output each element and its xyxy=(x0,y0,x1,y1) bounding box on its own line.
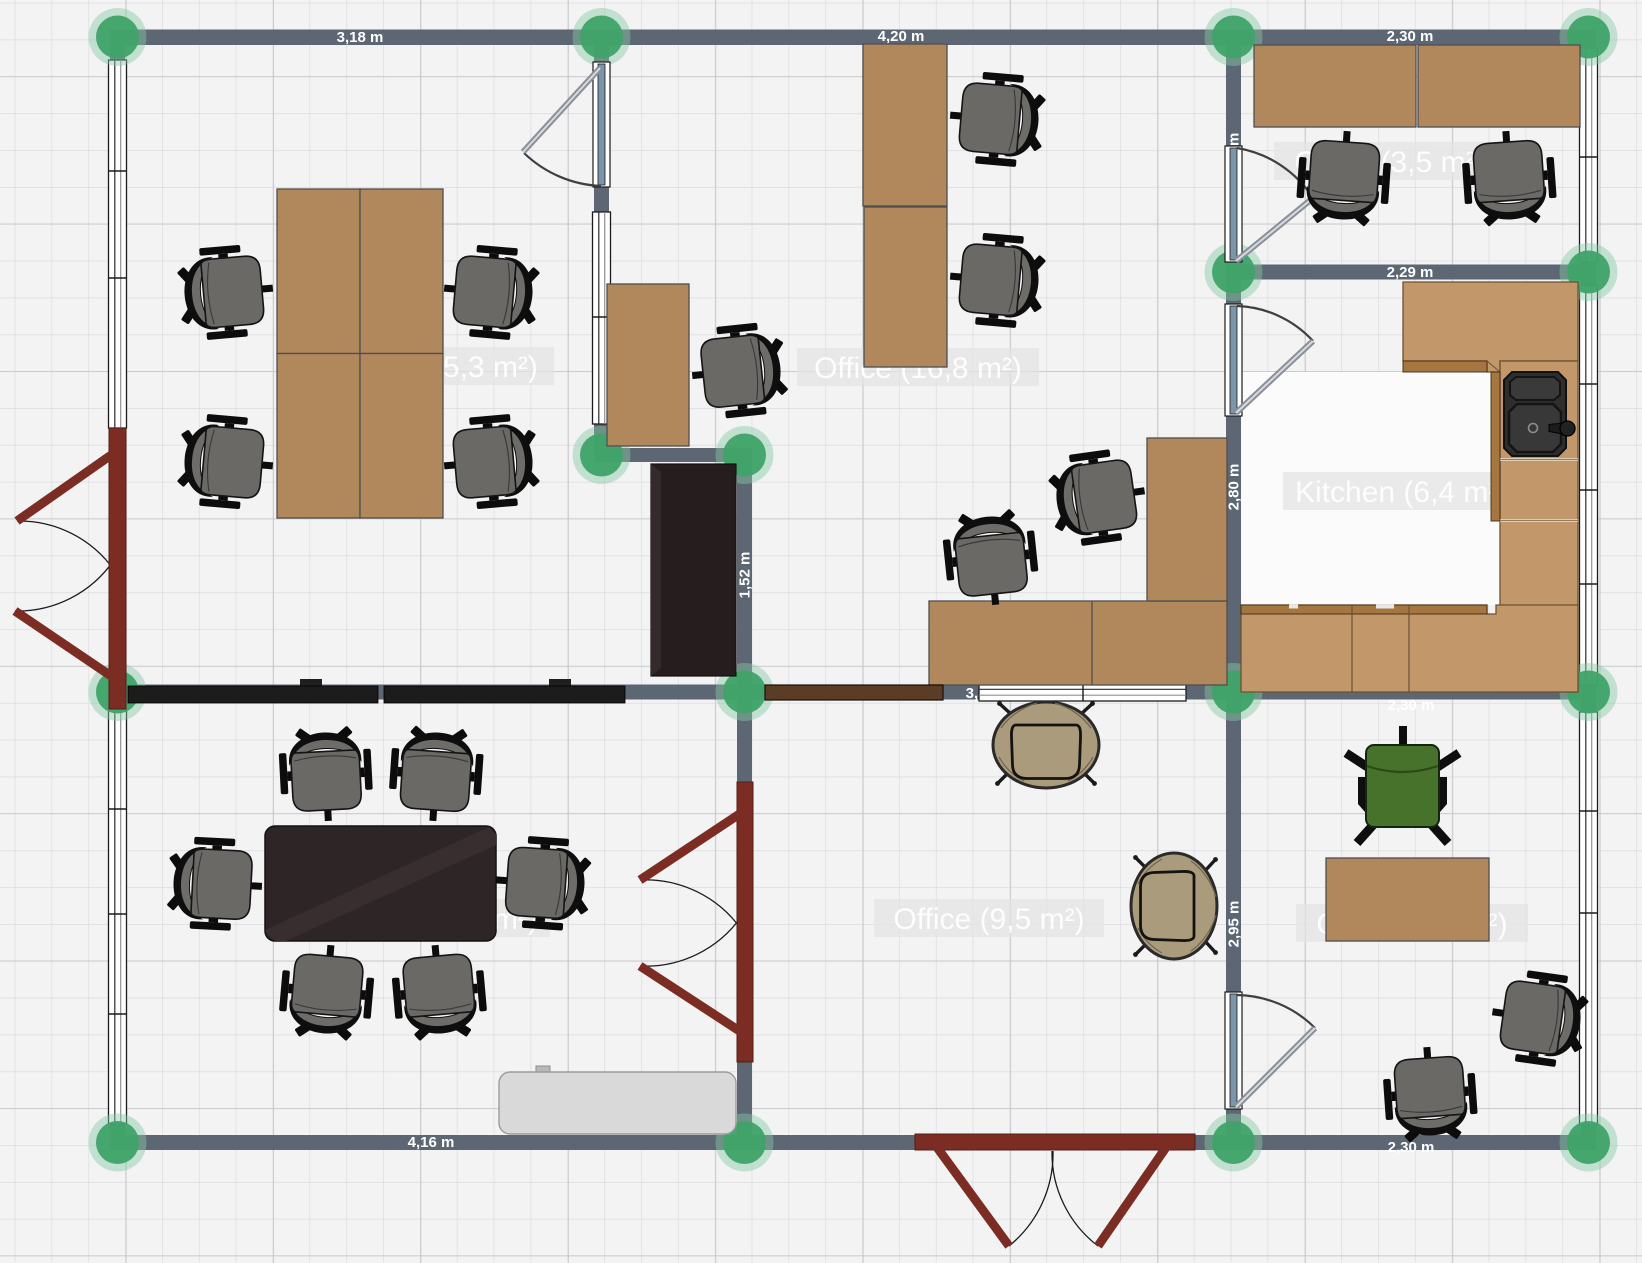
svg-text:2,30 m: 2,30 m xyxy=(1387,28,1434,45)
svg-text:2,30 m: 2,30 m xyxy=(1388,697,1435,714)
svg-text:2,29 m: 2,29 m xyxy=(1387,264,1434,281)
svg-text:4,20 m: 4,20 m xyxy=(878,28,925,45)
svg-text:Office (9,5 m²): Office (9,5 m²) xyxy=(893,903,1084,936)
svg-text:2,95 m: 2,95 m xyxy=(1226,901,1243,948)
svg-text:2,80 m: 2,80 m xyxy=(1226,464,1243,511)
svg-text:Kitchen (6,4 m²): Kitchen (6,4 m²) xyxy=(1295,476,1508,509)
svg-text:1,52 m: 1,52 m xyxy=(737,552,754,599)
svg-text:3,18 m: 3,18 m xyxy=(337,29,384,46)
svg-text:4,16 m: 4,16 m xyxy=(408,1134,455,1151)
